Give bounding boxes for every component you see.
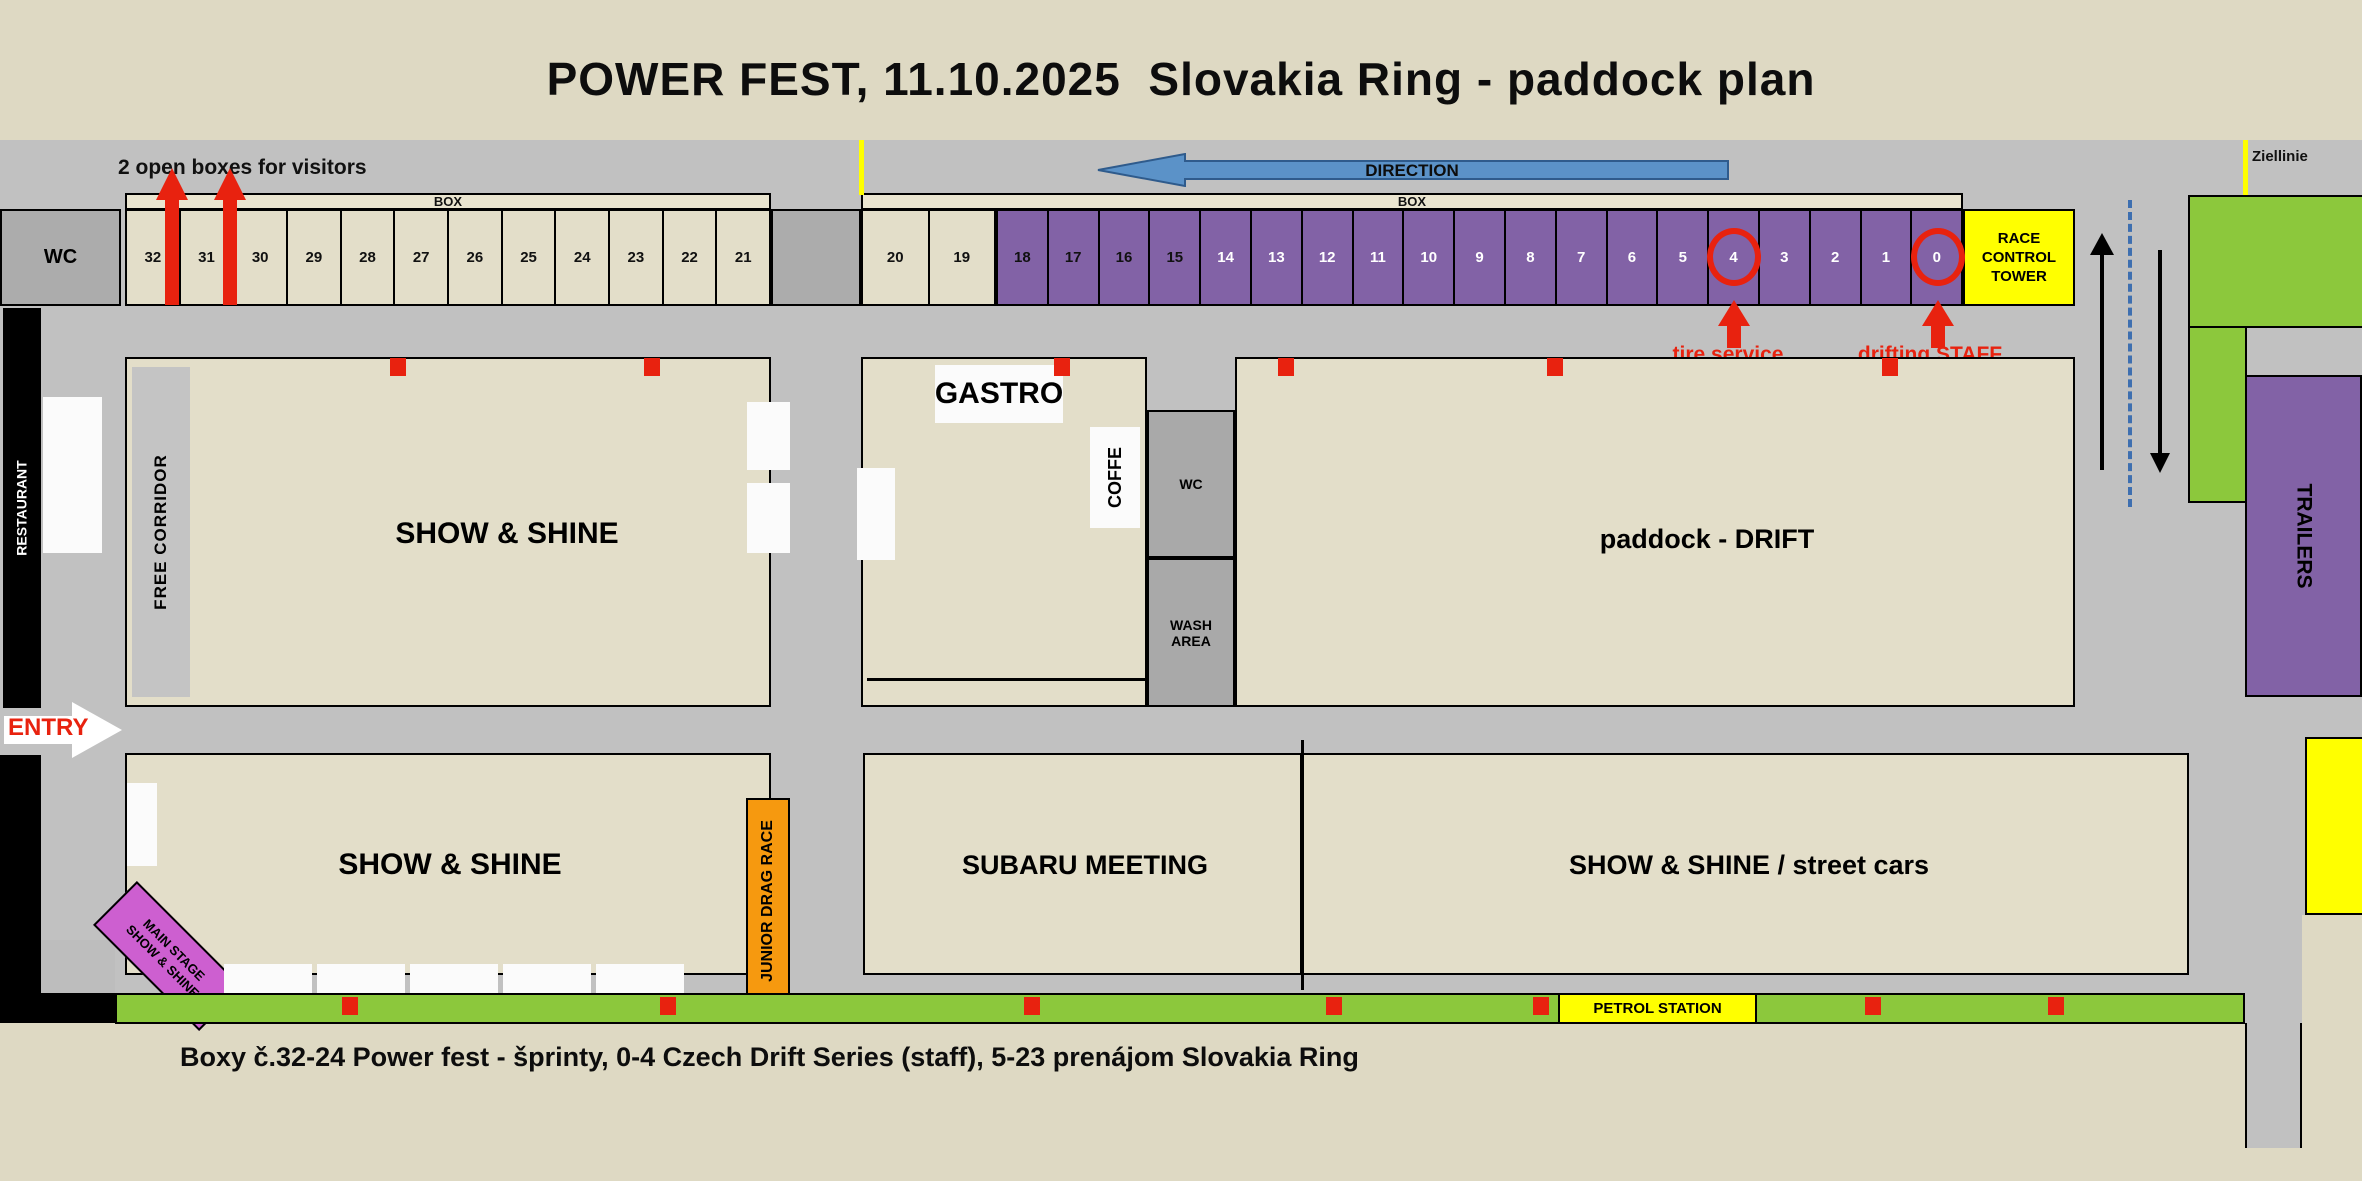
marker bbox=[1054, 358, 1070, 376]
beige-patch bbox=[2302, 915, 2362, 1023]
junior-drag-race-strip: JUNIOR DRAG RACE bbox=[746, 798, 790, 1003]
show-shine-1-label: SHOW & SHINE bbox=[307, 509, 707, 559]
direction-label: DIRECTION bbox=[1365, 161, 1459, 180]
wc-small-label: WC bbox=[1179, 476, 1202, 492]
subaru-meeting-area: SUBARU MEETING bbox=[863, 753, 1302, 975]
paddock-plan: POWER FEST, 11.10.2025 Slovakia Ring - p… bbox=[0, 0, 2362, 1181]
black-foot bbox=[41, 993, 115, 1023]
wash-area: WASH AREA bbox=[1147, 558, 1235, 707]
pit-box-24: 24 bbox=[554, 209, 610, 306]
pit-box-25: 25 bbox=[501, 209, 557, 306]
map-area: 2 open boxes for visitors BOX BOX WC 323… bbox=[0, 140, 2362, 1023]
pit-box-7: 7 bbox=[1555, 209, 1608, 306]
pit-box-18: 18 bbox=[996, 209, 1049, 306]
wc-block: WC bbox=[0, 209, 121, 306]
white-structure bbox=[857, 468, 895, 560]
direction-arrow: DIRECTION bbox=[1090, 153, 1730, 187]
pit-box-5: 5 bbox=[1656, 209, 1709, 306]
paddock-drift-area: paddock - DRIFT bbox=[1235, 357, 2075, 707]
gastro-label-box: GASTRO bbox=[935, 365, 1063, 423]
pit-box-26: 26 bbox=[447, 209, 503, 306]
coffe-label: COFFE bbox=[1105, 447, 1126, 508]
pit-boxes-32-21: 323130292827262524232221 bbox=[125, 209, 771, 306]
marker bbox=[644, 358, 660, 376]
visitor-arrow-shaft bbox=[165, 198, 179, 305]
black-strip-lower bbox=[0, 755, 41, 1023]
visitor-arrow-shaft bbox=[223, 198, 237, 305]
pit-box-10: 10 bbox=[1402, 209, 1455, 306]
pit-box-16: 16 bbox=[1098, 209, 1151, 306]
white-structure bbox=[127, 783, 157, 866]
show-shine-2-label: SHOW & SHINE bbox=[250, 840, 650, 890]
pit-box-23: 23 bbox=[608, 209, 664, 306]
pit-box-1: 1 bbox=[1860, 209, 1913, 306]
marker bbox=[1865, 997, 1881, 1015]
subaru-meeting-label: SUBARU MEETING bbox=[885, 840, 1285, 890]
show-shine-1-area: FREE CORRIDOR SHOW & SHINE bbox=[125, 357, 771, 707]
pit-box-21: 21 bbox=[715, 209, 771, 306]
marker bbox=[1024, 997, 1040, 1015]
lane-down-arrow-icon bbox=[2150, 453, 2170, 473]
pit-box-15: 15 bbox=[1148, 209, 1201, 306]
pit-box-6: 6 bbox=[1606, 209, 1659, 306]
junior-drag-race-label: JUNIOR DRAG RACE bbox=[759, 820, 777, 982]
wc-small-area: WC bbox=[1147, 410, 1235, 558]
pit-box-9: 9 bbox=[1453, 209, 1506, 306]
white-structure bbox=[747, 402, 790, 470]
pit-boxes-18-0: 1817161514131211109876543210 bbox=[996, 209, 1963, 306]
pit-box-8: 8 bbox=[1504, 209, 1557, 306]
lane-divider-dashed-line bbox=[2128, 200, 2132, 507]
drifting-staff-arrow-icon bbox=[1922, 300, 1954, 326]
visitor-arrow-icon bbox=[214, 168, 246, 200]
pit-box-3: 3 bbox=[1758, 209, 1811, 306]
trailers-label: TRAILERS bbox=[2292, 484, 2316, 589]
circle-box-0 bbox=[1911, 228, 1965, 286]
road-extension bbox=[2245, 1023, 2302, 1148]
paddock-drift-label: paddock - DRIFT bbox=[1507, 514, 1907, 564]
white-structure bbox=[43, 397, 102, 553]
marker bbox=[342, 997, 358, 1015]
entry-label: ENTRY bbox=[8, 714, 88, 742]
show-shine-2-area: SHOW & SHINE bbox=[125, 753, 771, 975]
marker bbox=[2048, 997, 2064, 1015]
trailers-area: TRAILERS bbox=[2245, 375, 2362, 697]
green-strip bbox=[115, 993, 2245, 1024]
street-cars-label: SHOW & SHINE / street cars bbox=[1504, 840, 1994, 890]
pit-box-22: 22 bbox=[662, 209, 718, 306]
pit-box-19: 19 bbox=[928, 209, 997, 306]
lane-up-arrow-icon bbox=[2090, 233, 2114, 255]
green-zone-column bbox=[2188, 326, 2247, 503]
yellow-block-bottom-right bbox=[2305, 737, 2362, 915]
marker bbox=[1326, 997, 1342, 1015]
pit-box-29: 29 bbox=[286, 209, 342, 306]
gastro-counter-line bbox=[867, 678, 1145, 681]
petrol-station: PETROL STATION bbox=[1558, 993, 1757, 1024]
lane-down-arrow-shaft bbox=[2158, 250, 2162, 455]
circle-box-4 bbox=[1707, 228, 1761, 286]
marker bbox=[390, 358, 406, 376]
marker bbox=[1533, 997, 1549, 1015]
pit-box-27: 27 bbox=[393, 209, 449, 306]
pit-box-2: 2 bbox=[1809, 209, 1862, 306]
pit-box-14: 14 bbox=[1199, 209, 1252, 306]
pit-box-30: 30 bbox=[232, 209, 288, 306]
white-structure bbox=[747, 483, 790, 553]
gastro-area: GASTRO COFFE bbox=[861, 357, 1147, 707]
green-zone-top bbox=[2188, 195, 2362, 328]
pit-box-12: 12 bbox=[1301, 209, 1354, 306]
page-title: POWER FEST, 11.10.2025 Slovakia Ring - p… bbox=[0, 52, 2362, 106]
pit-box-28: 28 bbox=[340, 209, 396, 306]
restaurant-strip: RESTAURANT bbox=[3, 308, 41, 708]
marker bbox=[1882, 358, 1898, 376]
free-corridor-label: FREE CORRIDOR bbox=[151, 454, 171, 610]
lane-up-arrow-shaft bbox=[2100, 253, 2104, 470]
restaurant-label: RESTAURANT bbox=[14, 460, 30, 555]
race-control-tower: RACE CONTROL TOWER bbox=[1963, 209, 2075, 306]
marker bbox=[660, 997, 676, 1015]
pit-box-17: 17 bbox=[1047, 209, 1100, 306]
pit-box-13: 13 bbox=[1250, 209, 1303, 306]
gap-block bbox=[771, 209, 861, 306]
yellow-line-left bbox=[859, 140, 864, 195]
pit-box-11: 11 bbox=[1352, 209, 1405, 306]
tire-service-arrow-icon bbox=[1718, 300, 1750, 326]
free-corridor-strip: FREE CORRIDOR bbox=[132, 367, 190, 697]
marker bbox=[1547, 358, 1563, 376]
visitor-arrow-icon bbox=[156, 168, 188, 200]
street-cars-area: SHOW & SHINE / street cars bbox=[1302, 753, 2189, 975]
pit-box-20: 20 bbox=[861, 209, 930, 306]
coffe-label-box: COFFE bbox=[1090, 427, 1140, 528]
legend-caption: Boxy č.32-24 Power fest - šprinty, 0-4 C… bbox=[180, 1042, 1359, 1073]
ziellinie-label: Ziellinie bbox=[2252, 148, 2308, 165]
gray-inset bbox=[41, 940, 115, 993]
pit-boxes-20-19: 2019 bbox=[861, 209, 996, 306]
ziellinie-line bbox=[2243, 140, 2248, 197]
box-header-right: BOX bbox=[861, 193, 1963, 210]
marker bbox=[1278, 358, 1294, 376]
